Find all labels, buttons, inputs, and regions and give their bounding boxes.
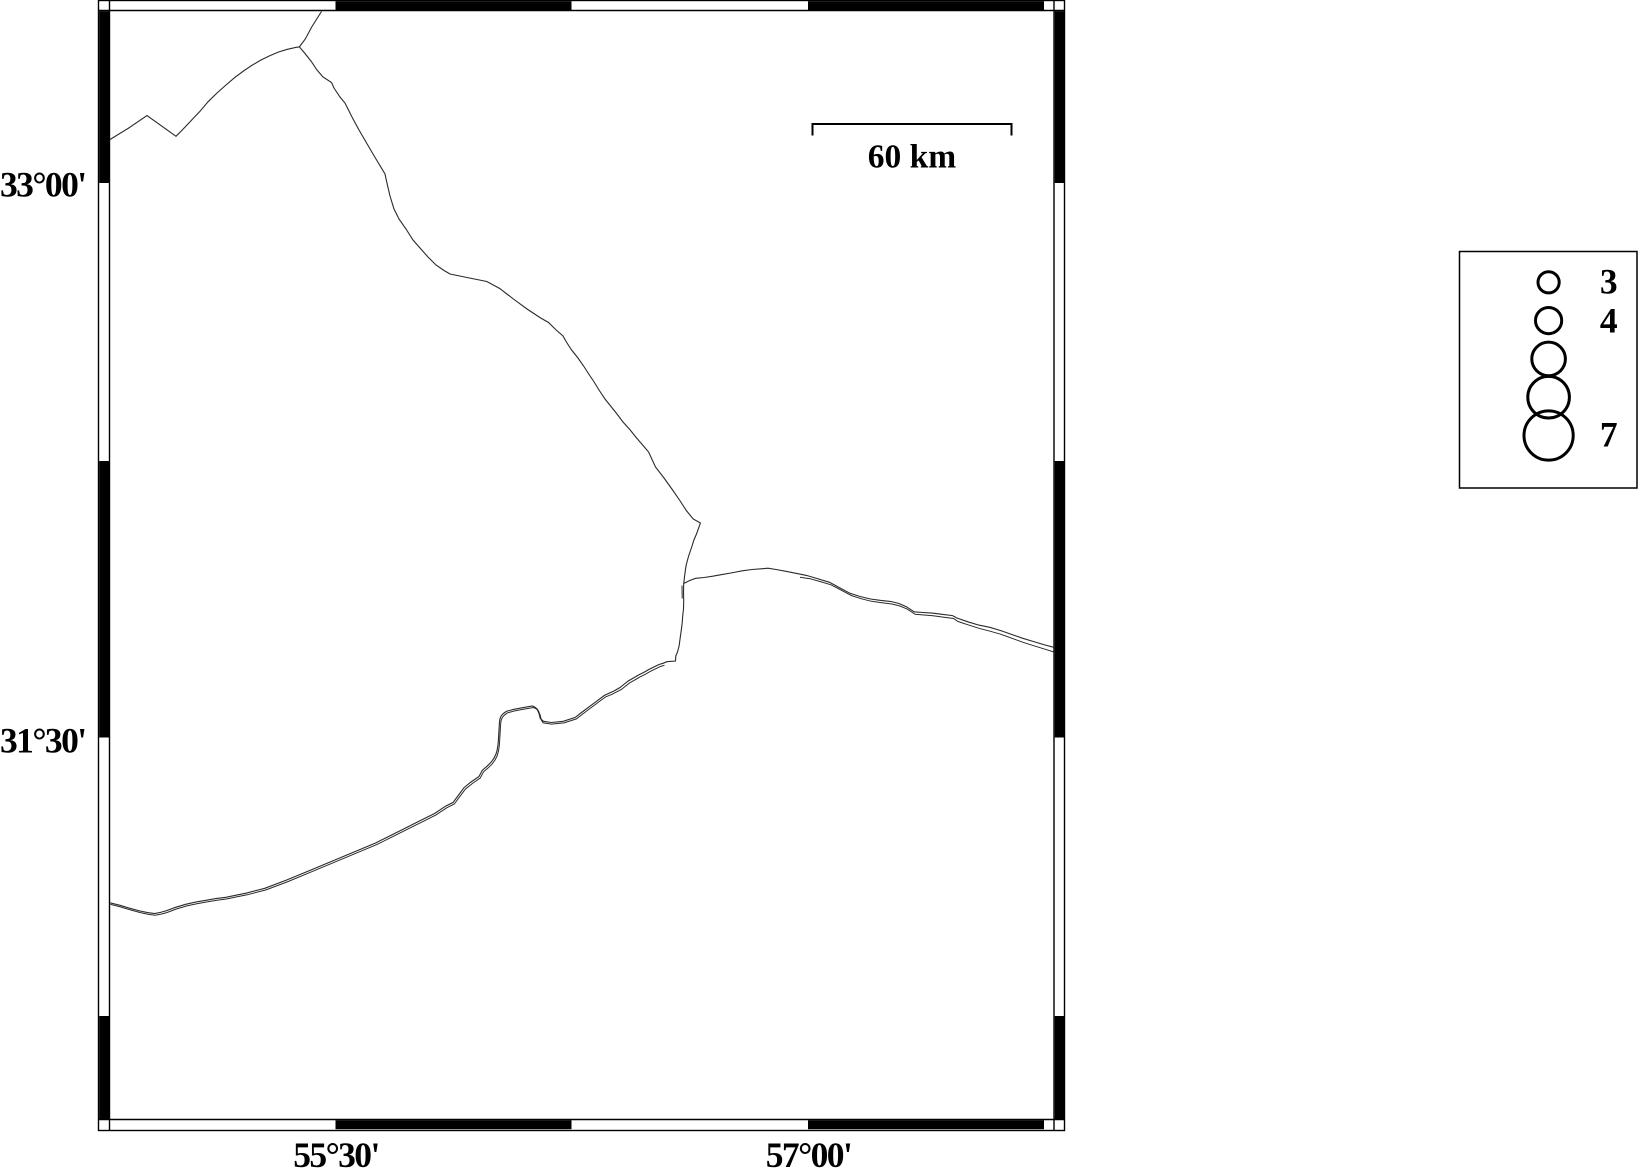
svg-text:31°30': 31°30'	[0, 721, 85, 761]
svg-text:57°00': 57°00'	[766, 1135, 851, 1168]
svg-text:60 km: 60 km	[868, 139, 957, 176]
svg-text:55°30': 55°30'	[293, 1135, 378, 1168]
svg-text:33°00': 33°00'	[0, 165, 85, 205]
svg-text:4: 4	[1600, 301, 1618, 341]
svg-text:3: 3	[1600, 262, 1618, 302]
svg-text:7: 7	[1600, 415, 1618, 455]
